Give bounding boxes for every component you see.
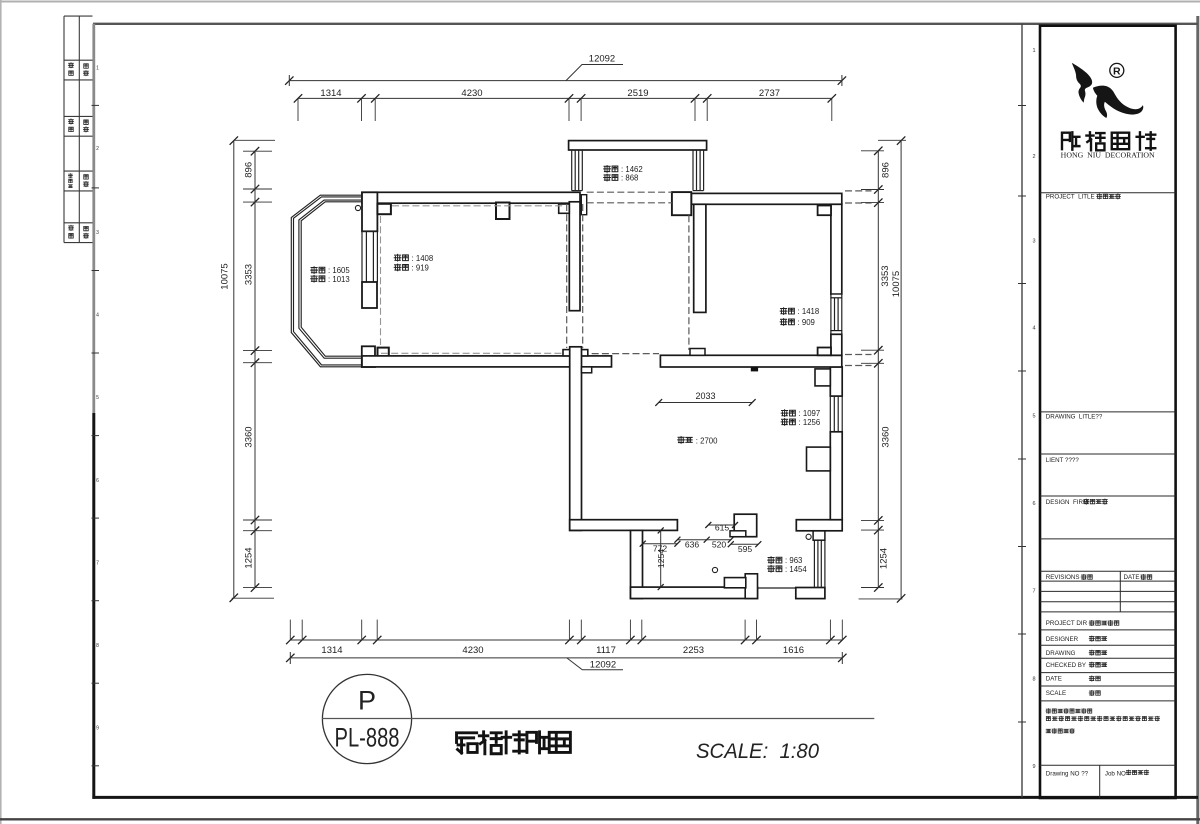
svg-text:2737: 2737 [759,88,780,99]
svg-text:4: 4 [1032,326,1035,332]
svg-text:REVISIONS: REVISIONS [1046,574,1080,581]
svg-text:: 868: : 868 [621,174,638,183]
svg-text:: 1418: : 1418 [798,307,820,316]
svg-text:1117: 1117 [596,645,616,656]
svg-text:2253: 2253 [683,645,704,656]
svg-text:: 1097: : 1097 [799,409,821,418]
svg-text:3: 3 [1032,239,1035,245]
svg-text:DESIGN FIRM: DESIGN FIRM [1046,499,1088,506]
svg-text:: 1408: : 1408 [412,254,434,263]
svg-text:3353: 3353 [244,264,255,285]
svg-text:12092: 12092 [590,659,616,670]
svg-text:896: 896 [881,162,892,178]
svg-text:9: 9 [1032,764,1035,770]
svg-text:3: 3 [96,230,99,236]
svg-text:1: 1 [96,66,99,72]
svg-text:520: 520 [712,539,727,549]
svg-text:9: 9 [96,726,99,732]
svg-text:PL-888: PL-888 [335,723,400,753]
svg-text:SCALE: SCALE [1046,690,1066,697]
svg-text:1314: 1314 [321,645,342,656]
svg-text:4230: 4230 [461,88,482,99]
svg-text:3353: 3353 [880,265,891,286]
svg-text:CHECKED BY: CHECKED BY [1046,662,1086,669]
svg-text:: 919: : 919 [412,264,429,273]
svg-text:P: P [358,686,376,716]
svg-text:3360: 3360 [881,426,892,447]
svg-text:5: 5 [96,395,99,401]
svg-text:DRAWING LITLE??: DRAWING LITLE?? [1046,413,1103,420]
svg-text:: 1454: : 1454 [785,565,807,574]
svg-text:DATE: DATE [1124,574,1140,581]
svg-text:1616: 1616 [783,645,804,656]
svg-text:5: 5 [1032,414,1035,420]
svg-text:PROJECT DIR: PROJECT DIR [1046,620,1088,627]
svg-text:4230: 4230 [462,645,483,656]
svg-text:HONG NIU DECORATION: HONG NIU DECORATION [1061,150,1156,159]
svg-text:: 909: : 909 [798,318,815,327]
svg-text:8: 8 [96,643,99,649]
svg-text:1314: 1314 [320,88,341,99]
svg-text:6: 6 [1032,501,1035,507]
svg-text:LIENT ????: LIENT ???? [1046,457,1080,464]
svg-text:1254: 1254 [656,549,666,568]
svg-text:SCALE: 1:80: SCALE: 1:80 [696,739,819,763]
svg-text:896: 896 [244,162,255,178]
svg-text:Job NO: Job NO [1105,770,1126,777]
svg-text:10075: 10075 [220,263,231,289]
svg-text:2033: 2033 [695,391,715,401]
svg-text:R: R [1113,66,1121,78]
svg-text:: 2700: : 2700 [696,436,718,445]
svg-text:6: 6 [96,478,99,484]
svg-text:DATE: DATE [1046,676,1062,683]
svg-text:1254: 1254 [879,548,890,569]
svg-text:4: 4 [96,313,99,319]
svg-text:PROJECT LITLE: PROJECT LITLE [1046,194,1095,201]
svg-text:636: 636 [685,539,700,549]
svg-text:2: 2 [96,146,99,152]
svg-text:615: 615 [715,523,730,533]
svg-text:: 1013: : 1013 [328,275,350,284]
svg-text:12092: 12092 [589,54,615,65]
svg-text:10075: 10075 [891,271,902,297]
svg-text:595: 595 [738,544,753,554]
svg-text:2519: 2519 [627,88,648,99]
svg-text:Drawing NO ??: Drawing NO ?? [1046,770,1089,777]
svg-text:1: 1 [1032,48,1035,54]
svg-text:1254: 1254 [244,547,255,568]
svg-text:7: 7 [1032,589,1035,595]
svg-text:7: 7 [96,561,99,567]
svg-text:: 1256: : 1256 [799,418,821,427]
svg-text:2: 2 [1032,154,1035,160]
svg-text:8: 8 [1032,677,1035,683]
svg-text:DRAWING: DRAWING [1046,650,1076,657]
svg-text:3360: 3360 [244,426,255,447]
svg-text:DESIGNER: DESIGNER [1046,636,1079,643]
